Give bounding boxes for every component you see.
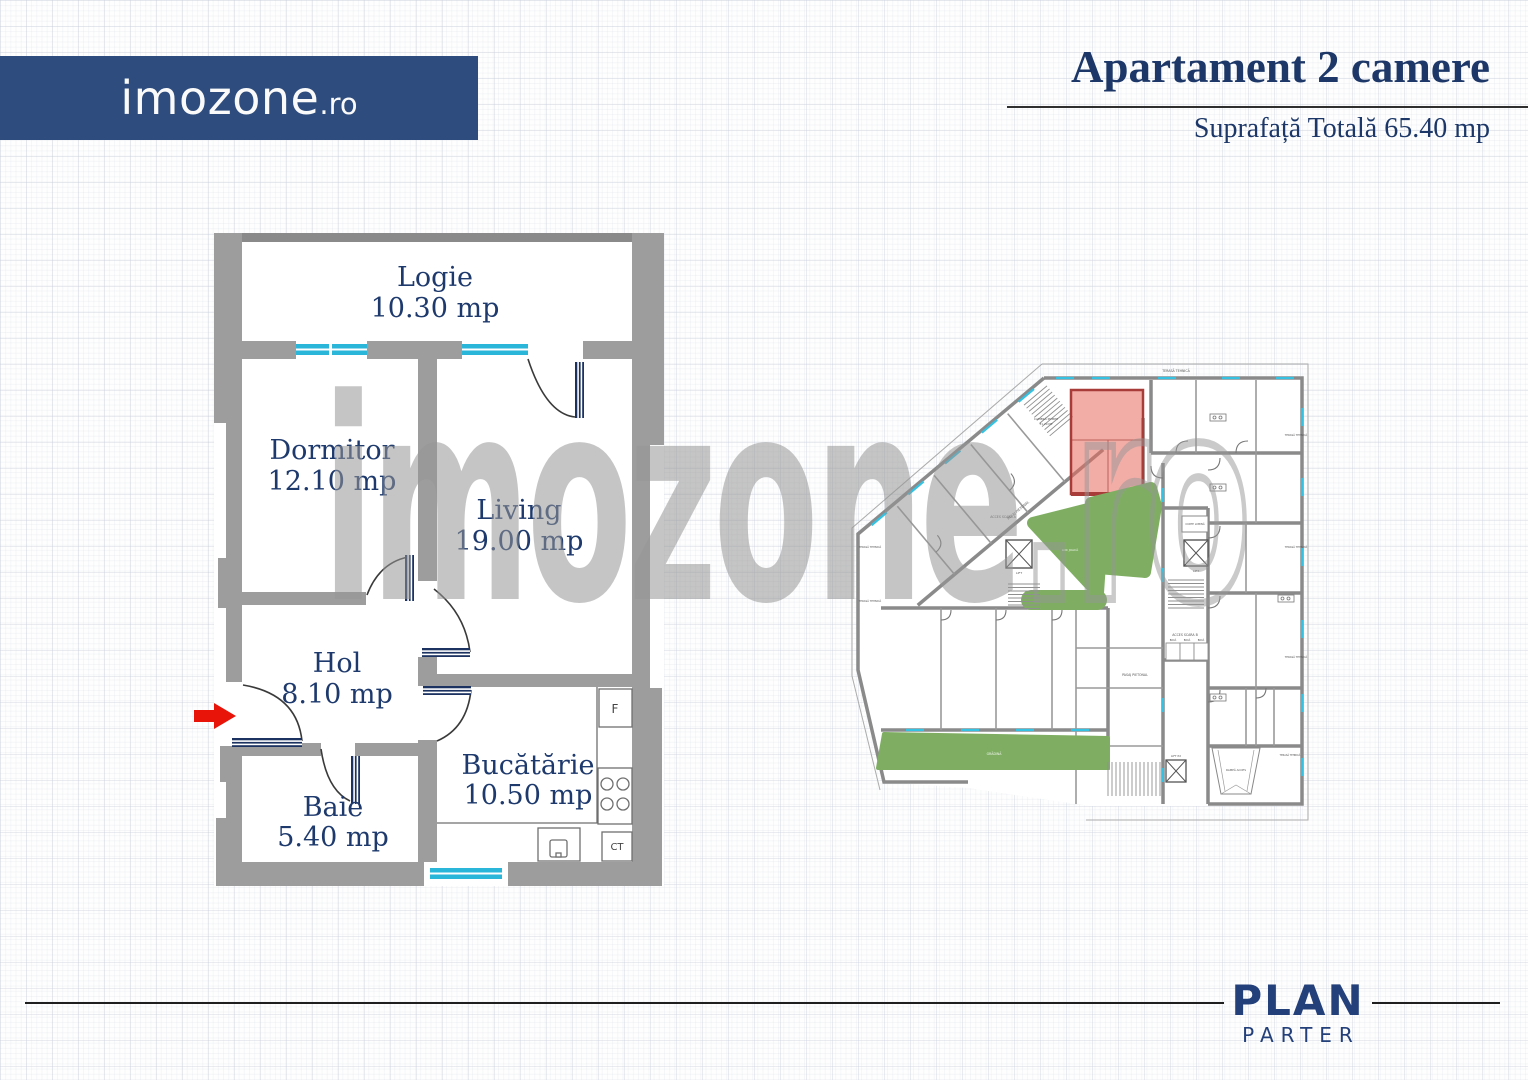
room-name: Hol [313,648,361,679]
window-kitchen-bottom [430,868,502,879]
fridge-label: F [612,702,619,716]
terasa-label: TERASĂ TEHNICĂ [1280,754,1301,757]
page-title: Apartament 2 camere [1071,44,1490,91]
boiler-label: CT [610,842,624,853]
scara-a-label: ACCES SCARA A [990,515,1016,519]
highlighted-unit [1071,390,1143,494]
boxa-row [1166,643,1208,660]
lift-b [1184,540,1208,566]
brand-name: imozone [120,71,319,125]
room-name: Bucătărie [462,750,595,781]
lift-p2 [1166,760,1186,782]
terasa-label: TERASĂ TEHNICĂ [1161,368,1190,373]
window-logie-left [296,344,367,355]
gradina-label: GRĂDINĂ [987,751,1003,756]
burner-icon [601,778,613,790]
camera-pompe-label: CAMERĂ POMPE [1034,416,1058,421]
door-dormitor [405,555,414,601]
page-subtitle: Suprafață Totală 65.40 mp [1071,113,1490,145]
lift-b-label: LIFT [1193,569,1199,573]
lift-a-label: LIFT [1016,571,1022,575]
door-living [422,648,470,657]
ramp-label: RAMPĂ ACCES [1226,767,1246,772]
footer-rule-right [1372,1002,1500,1004]
room-name: Logie [397,262,473,293]
window-logie-right [462,344,528,355]
apartment-floor-plan: F CT Logie 10.30 mp Dormitor 12.10 mp Li… [192,228,664,896]
stove-box [598,768,632,824]
lift-a [1006,540,1032,568]
room-area: 5.40 mp [277,822,389,853]
lift-p2-label: LIFT P2 [1171,754,1181,758]
pasaj-label: PASAJ PIETONAL [1122,673,1148,677]
room-area: 19.00 mp [455,526,584,557]
brand-banner: imozone.ro [0,56,478,140]
door-bucatarie [423,686,471,695]
room-area: 12.10 mp [268,466,397,497]
footer-rule-left [25,1002,1224,1004]
camera-pompe-area: 31.20 MP [1040,422,1053,426]
burner-icon [617,798,629,810]
title-block: Apartament 2 camere Suprafață Totală 65.… [1071,44,1490,145]
burner-icon [617,778,629,790]
room-name: Living [476,495,561,526]
scara-b-label: ACCES SCARA B [1172,633,1198,637]
plan-level-logo: PLAN PARTER [1228,980,1368,1045]
boxa-label: BOXĂ [1184,639,1191,642]
sink-drain [556,853,561,857]
flyer-canvas: imozone.ro Apartament 2 camere Suprafață… [0,0,1528,1080]
door-entrance [232,738,302,747]
building-site-plan: PASAJ PIETONAL LOC JOACĂ GRĂDINĂ LIFT LI… [846,358,1326,834]
loc-joaca-label: LOC JOACĂ [1062,547,1079,552]
burner-icon [601,798,613,810]
door-logie [575,362,584,418]
boxa-label: BOXĂ [1170,639,1177,642]
room-name: Dormitor [269,435,394,466]
room-area: 8.10 mp [281,679,393,710]
title-rule [1007,106,1528,108]
room-area: 10.30 mp [371,293,500,324]
room-name: Baie [303,792,364,823]
plan-label: PLAN [1228,980,1368,1022]
brand-tld: .ro [319,87,357,121]
boxa-label: BOXĂ [1198,639,1205,642]
room-area: 10.50 mp [464,780,593,811]
level-label: PARTER [1234,1025,1368,1045]
